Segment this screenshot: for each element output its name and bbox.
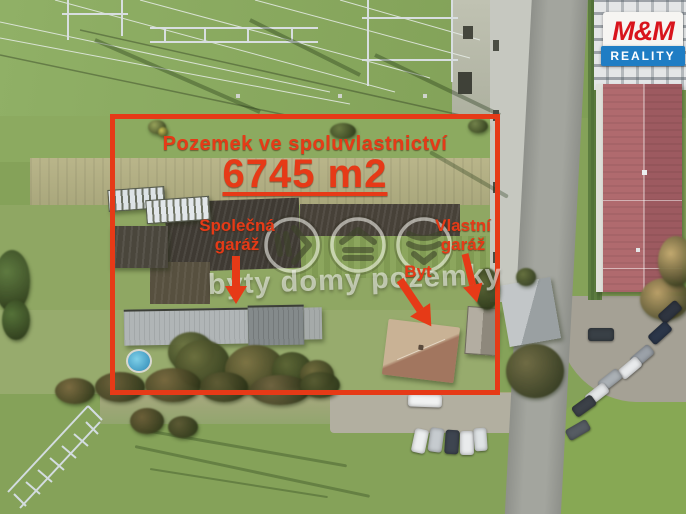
tree-canopy: [658, 236, 686, 286]
logo-title: M&M: [612, 16, 673, 46]
substation-equipment: [463, 26, 473, 39]
parked-car: [460, 431, 474, 455]
white-wall-strip: [596, 84, 603, 292]
parked-car: [588, 328, 614, 341]
parked-car: [427, 427, 444, 453]
footpath-top: [452, 0, 490, 116]
tree-canopy: [130, 408, 164, 434]
logo-card: M&M: [603, 12, 683, 50]
parked-car: [444, 430, 460, 455]
tree-canopy: [506, 344, 564, 398]
shared-garage-label: Společná garáž: [188, 216, 286, 254]
area-label: 6745 m2: [113, 152, 497, 197]
logo-banner: REALITY: [601, 46, 685, 66]
roof-seam: [603, 200, 682, 201]
neighbor-shed-roof: [499, 277, 561, 347]
roof-hatch: [636, 248, 640, 252]
tree-canopy: [55, 378, 95, 404]
roof-hatch: [642, 170, 647, 175]
door-mark: [493, 40, 499, 51]
roof-ridge: [643, 84, 645, 292]
substation-equipment: [458, 72, 472, 94]
own-garage-label: Vlastní garáž: [424, 216, 502, 254]
flat-label: Byt: [396, 262, 440, 281]
area-value: 6745 m2: [223, 152, 388, 196]
tree-canopy: [168, 416, 198, 438]
parked-car: [473, 428, 488, 452]
parked-car: [408, 393, 442, 407]
aerial-photo: byty domy pozemky Pozemek ve spoluvlastn…: [0, 0, 686, 514]
tree-canopy: [2, 300, 30, 340]
logo-subtitle: REALITY: [610, 49, 675, 63]
agency-logo: M&M REALITY: [601, 12, 685, 70]
tree-canopy: [516, 268, 536, 286]
